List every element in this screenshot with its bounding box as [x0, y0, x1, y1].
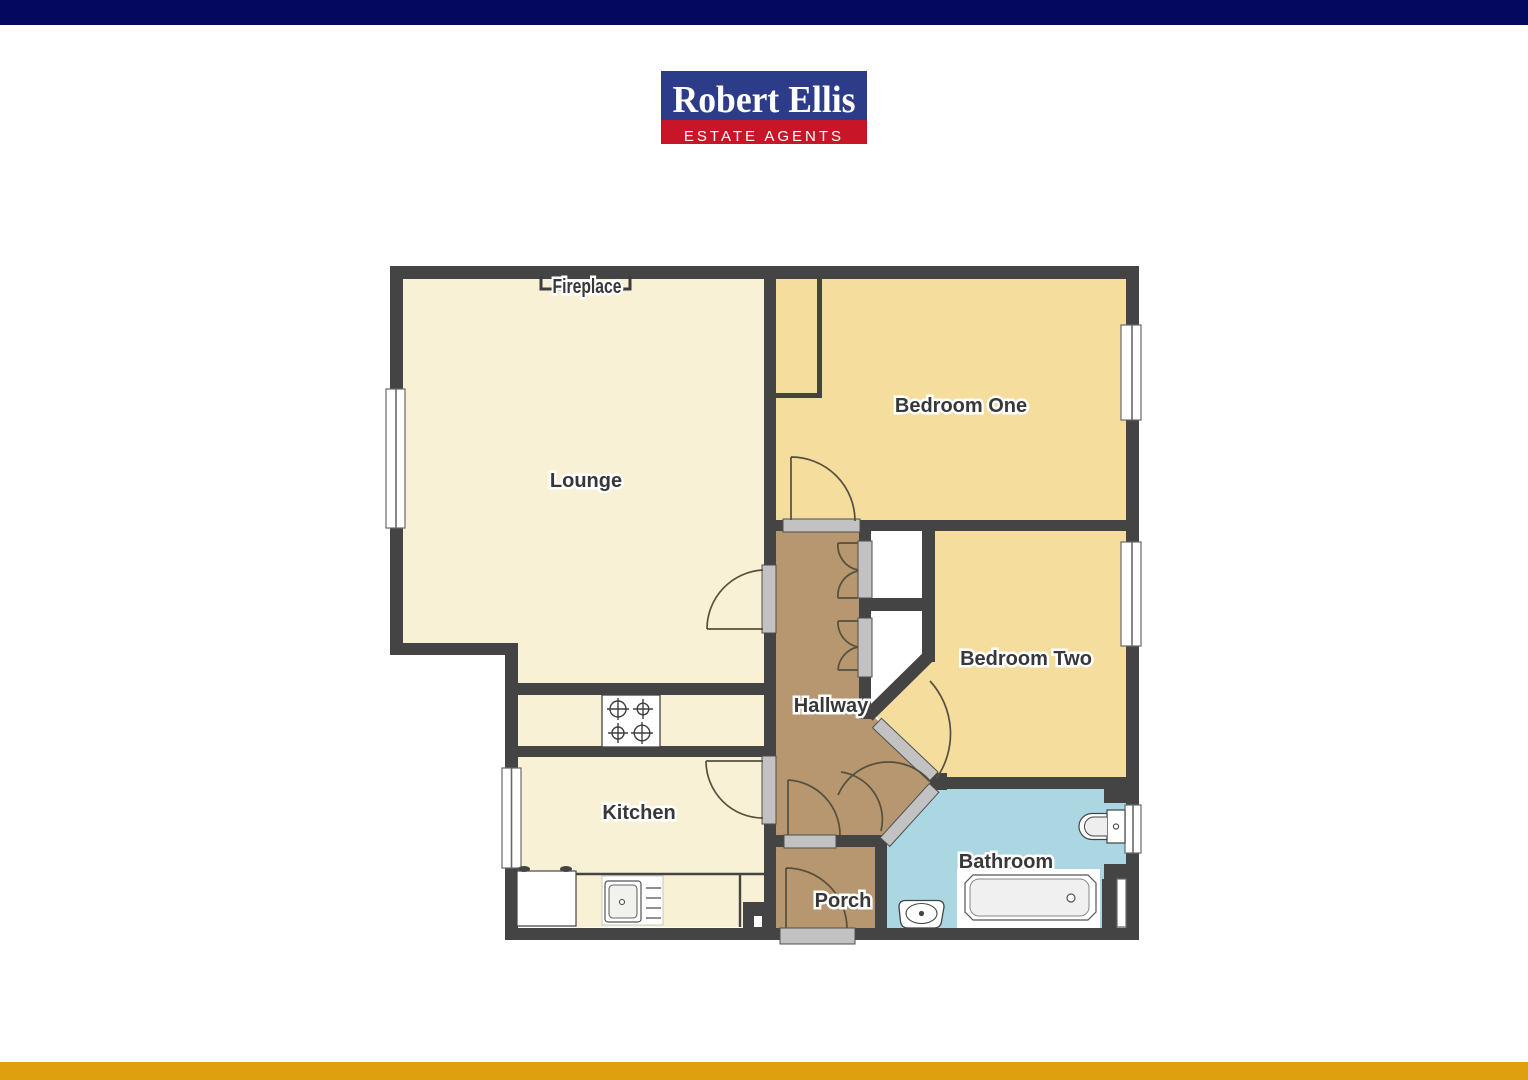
svg-text:Robert Ellis: Robert Ellis	[673, 79, 856, 121]
svg-text:Hallway: Hallway	[794, 695, 869, 717]
svg-text:Bathroom: Bathroom	[959, 851, 1053, 873]
svg-text:Kitchen: Kitchen	[602, 802, 675, 824]
svg-text:Bedroom One: Bedroom One	[895, 395, 1027, 417]
svg-text:ESTATE AGENTS: ESTATE AGENTS	[684, 128, 844, 145]
svg-text:Bedroom Two: Bedroom Two	[960, 648, 1092, 670]
svg-text:Fireplace: Fireplace	[553, 276, 622, 298]
svg-text:Lounge: Lounge	[550, 470, 622, 492]
svg-text:Porch: Porch	[815, 890, 872, 912]
